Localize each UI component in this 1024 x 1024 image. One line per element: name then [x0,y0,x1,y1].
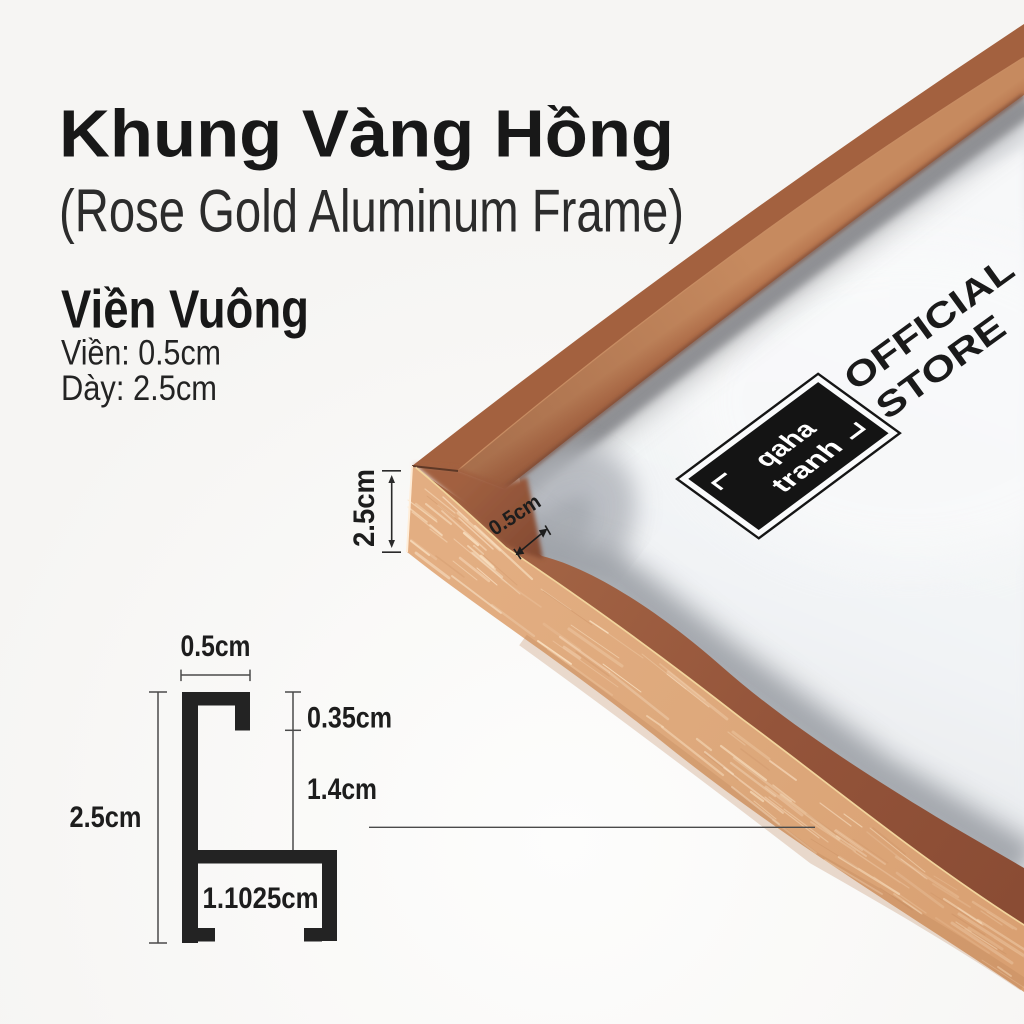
svg-text:Dày: 2.5cm: Dày: 2.5cm [61,369,217,408]
svg-text:2.5cm: 2.5cm [348,469,381,547]
svg-text:(Rose Gold Aluminum Frame): (Rose Gold Aluminum Frame) [59,178,684,245]
svg-text:Khung Vàng Hồng: Khung Vàng Hồng [59,97,674,172]
svg-text:0.5cm: 0.5cm [181,630,251,663]
svg-text:Viền: 0.5cm: Viền: 0.5cm [61,334,221,373]
svg-text:Viền Vuông: Viền Vuông [61,280,309,340]
svg-text:0.35cm: 0.35cm [307,702,392,735]
svg-text:1.1025cm: 1.1025cm [203,882,319,915]
svg-text:1.4cm: 1.4cm [307,773,377,806]
svg-text:2.5cm: 2.5cm [70,801,142,834]
